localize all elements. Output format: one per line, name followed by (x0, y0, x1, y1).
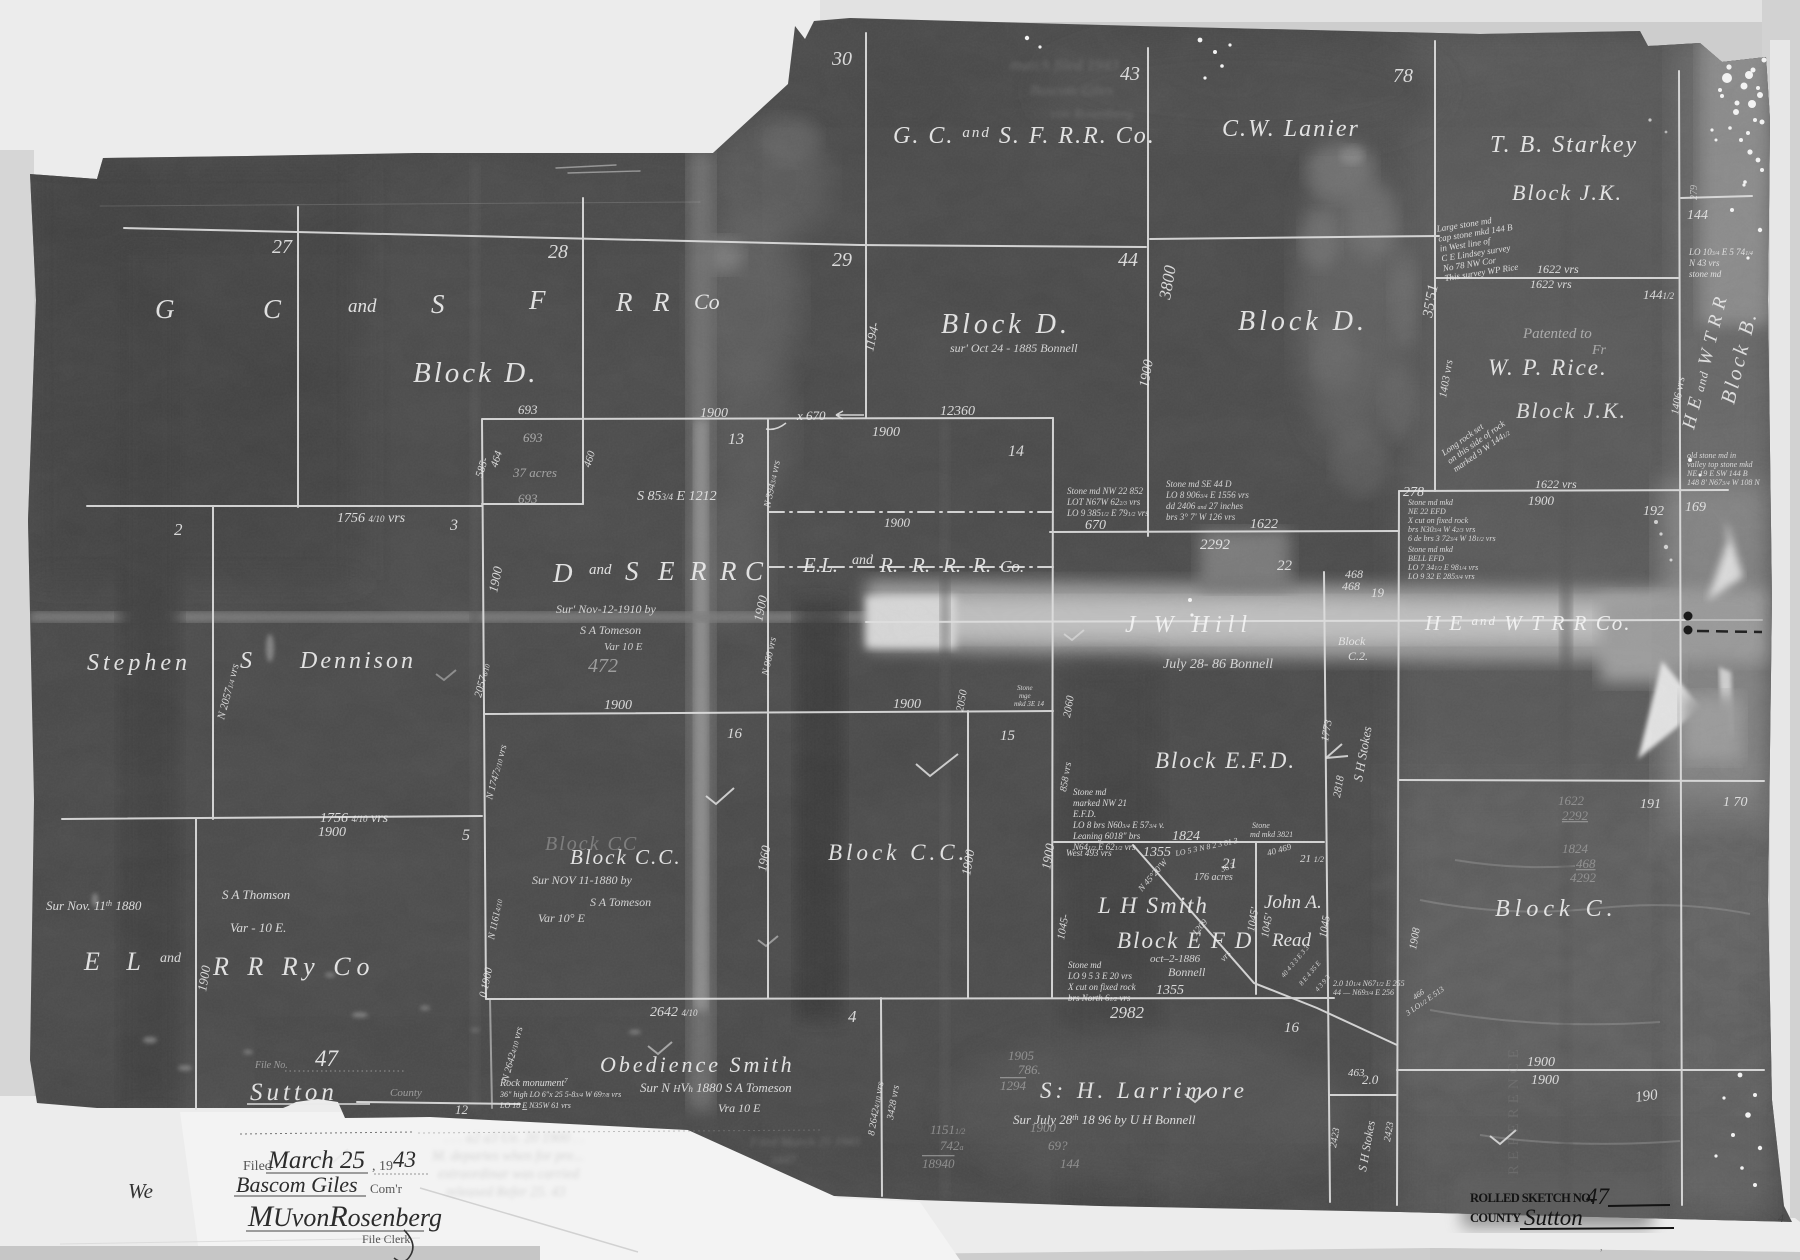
svg-text:REFERENCE: REFERENCE (1506, 1044, 1522, 1175)
svg-text:marked NW 21: marked NW 21 (1073, 798, 1127, 808)
svg-text:R: R (689, 556, 707, 586)
svg-text:3: 3 (449, 517, 458, 534)
svg-text:Block E F D: Block E F D (1117, 928, 1253, 953)
svg-text:1622: 1622 (1558, 793, 1585, 808)
svg-text:1756 4/10 vrs: 1756 4/10 vrs (320, 811, 389, 826)
svg-text:Block D.: Block D. (941, 309, 1071, 340)
svg-text:1756 4/10 vrs: 1756 4/10 vrs (337, 511, 406, 526)
svg-text:and: and (160, 951, 182, 966)
svg-text:1622 vrs: 1622 vrs (1535, 477, 1577, 491)
svg-text:22: 22 (1277, 558, 1293, 574)
svg-text:M. departes when for pre...: M. departes when for pre... (431, 1149, 584, 1164)
svg-text:176 acres: 176 acres (1194, 872, 1233, 883)
svg-text:brs North 61/2 vrs: brs North 61/2 vrs (1068, 993, 1131, 1003)
svg-text:12360: 12360 (940, 404, 975, 419)
svg-text:Sutton: Sutton (1524, 1205, 1583, 1230)
svg-text:21 1/2: 21 1/2 (1300, 853, 1324, 865)
svg-text:R.: R. (879, 553, 898, 577)
svg-text:X cut on fixed rock: X cut on fixed rock (1067, 982, 1137, 992)
svg-text:County: County (390, 1087, 422, 1099)
svg-text:693: 693 (518, 491, 538, 506)
svg-text:Block D.: Block D. (1238, 306, 1368, 337)
svg-text:1900: 1900 (318, 825, 346, 840)
svg-text:LO 7 341/2 E 981/4 vrs: LO 7 341/2 E 981/4 vrs (1407, 563, 1478, 572)
svg-text:X cut on fixed rock: X cut on fixed rock (1407, 516, 1469, 525)
svg-text:Sur NOV 11-1880 by: Sur NOV 11-1880 by (532, 873, 633, 887)
svg-text:released Refer 25. 43: released Refer 25. 43 (446, 1185, 565, 1200)
svg-text:15: 15 (1000, 728, 1016, 744)
svg-text:G. C. and S. F. R.R. Co.: G. C. and S. F. R.R. Co. (893, 123, 1156, 149)
svg-text:Block J.K.: Block J.K. (1516, 398, 1627, 423)
svg-text:27: 27 (272, 236, 293, 258)
svg-text:G: G (155, 294, 175, 324)
svg-text:18940: 18940 (922, 1156, 955, 1171)
svg-text:2642 4/10: 2642 4/10 (650, 1005, 698, 1020)
svg-text:Block C.: Block C. (1495, 896, 1618, 922)
svg-text:Block: Block (1338, 634, 1366, 648)
svg-text:144: 144 (1687, 208, 1708, 223)
svg-text:NE 22 EFD: NE 22 EFD (1407, 507, 1446, 516)
svg-text:NE 19 E SW 144 B: NE 19 E SW 144 B (1686, 469, 1748, 478)
svg-text:Var 10° E: Var 10° E (538, 911, 585, 925)
svg-text:1900: 1900 (872, 425, 900, 440)
svg-text:2292: 2292 (1562, 808, 1589, 823)
svg-text:von Rosenberg: von Rosenberg (1050, 107, 1133, 122)
svg-text:Block C.C.: Block C.C. (828, 840, 968, 865)
svg-text:old stone md in: old stone md in (1687, 451, 1736, 460)
svg-text:E.F.D.: E.F.D. (1072, 809, 1096, 819)
svg-text:468: 468 (1342, 579, 1360, 593)
svg-text:Stone: Stone (1252, 821, 1270, 830)
svg-text:1622 vrs: 1622 vrs (1537, 262, 1579, 276)
svg-text:14: 14 (1008, 443, 1024, 460)
svg-text:Co: Co (694, 289, 720, 314)
svg-text:Sur N HVh 1880 S A Tomeson: Sur N HVh 1880 S A Tomeson (640, 1080, 792, 1095)
svg-text:Sur Nov. 11th 1880: Sur Nov. 11th 1880 (46, 898, 142, 913)
svg-text:Bascom Giles: Bascom Giles (1030, 83, 1113, 99)
svg-text:Bascom Giles: Bascom Giles (236, 1172, 358, 1197)
svg-text:West 493 vrs: West 493 vrs (1066, 848, 1112, 858)
svg-text:march filed 1943: march filed 1943 (1010, 57, 1119, 74)
svg-text:H E and W T R R Co.: H E and W T R R Co. (1424, 611, 1631, 635)
svg-text:R: R (652, 287, 670, 317)
svg-text:191: 191 (1640, 797, 1661, 812)
svg-text:We: We (128, 1179, 153, 1203)
svg-text:29: 29 (832, 249, 852, 271)
svg-text:LOT N67W 622/3 vrs: LOT N67W 622/3 vrs (1066, 497, 1141, 507)
svg-text:28: 28 (548, 241, 568, 263)
svg-text:LO 9 32 E 2853/4 vrs: LO 9 32 E 2853/4 vrs (1407, 572, 1475, 581)
svg-text:ROLLED SKETCH NO.: ROLLED SKETCH NO. (1470, 1191, 1593, 1205)
svg-text:mge: mge (1019, 692, 1031, 700)
svg-text:R.: R. (911, 553, 930, 577)
svg-text:Block J.K.: Block J.K. (1512, 180, 1623, 205)
svg-text:R: R (615, 287, 633, 317)
svg-text:693: 693 (523, 430, 543, 445)
svg-text:L H Smith: L H Smith (1097, 893, 1209, 918)
svg-text:1900: 1900 (1030, 1120, 1057, 1135)
svg-text:1294: 1294 (1000, 1078, 1027, 1093)
svg-text:F: F (528, 285, 546, 315)
svg-text:43: 43 (1120, 63, 1140, 85)
svg-text:valley top stone mkd: valley top stone mkd (1687, 460, 1754, 469)
svg-text:16: 16 (1284, 1020, 1300, 1036)
svg-text:670: 670 (1085, 518, 1106, 533)
svg-text:693: 693 (518, 402, 538, 417)
svg-text:16: 16 (727, 726, 743, 742)
svg-text:July 28- 86 Bonnell: July 28- 86 Bonnell (1163, 657, 1273, 672)
svg-text:Vra 10 E: Vra 10 E (718, 1101, 761, 1115)
svg-text:1 70: 1 70 (1723, 795, 1748, 810)
svg-text:T. B. Starkey: T. B. Starkey (1490, 132, 1638, 158)
svg-text:Sutton: Sutton (250, 1079, 338, 1106)
svg-text:2292: 2292 (1200, 537, 1231, 553)
svg-text:, 19: , 19 (372, 1159, 393, 1174)
svg-text:1622 vrs: 1622 vrs (1530, 277, 1572, 291)
svg-text:Patented to: Patented to (1522, 326, 1592, 342)
svg-text:Stone md mkd: Stone md mkd (1408, 545, 1454, 554)
svg-text:R.: R. (942, 553, 961, 577)
svg-text:MUvonRosenberg: MUvonRosenberg (247, 1200, 442, 1233)
svg-text:,: , (1600, 1242, 1603, 1253)
svg-text:brs N303/4 W 42/3 vrs: brs N303/4 W 42/3 vrs (1408, 525, 1475, 534)
svg-text:Block E.F.D.: Block E.F.D. (1155, 748, 1296, 773)
svg-text:2.0 101/4 N671/2 E 255: 2.0 101/4 N671/2 E 255 (1333, 979, 1405, 988)
svg-text:37 acres: 37 acres (512, 465, 557, 480)
svg-text:. . . a2 a3 Ue. 20 1900 . .: . . . a2 a3 Ue. 20 1900 . . (445, 1131, 584, 1146)
svg-text:C: C (263, 294, 282, 324)
svg-text:S A Thomson: S A Thomson (222, 887, 290, 902)
svg-text:S 853/4 E 1212: S 853/4 E 1212 (637, 489, 717, 504)
svg-text:File Clerk: File Clerk (362, 1232, 410, 1246)
svg-text:Stone md: Stone md (1068, 960, 1102, 970)
svg-text:extraordinar was carried: extraordinar was carried (438, 1167, 580, 1182)
svg-text:2: 2 (174, 520, 183, 539)
svg-text:Co.: Co. (1000, 557, 1024, 576)
svg-text:Block C.C.: Block C.C. (570, 845, 682, 869)
svg-text:S: H. Larrimore: S: H. Larrimore (1040, 1078, 1248, 1103)
svg-text:March 25: March 25 (267, 1147, 365, 1174)
svg-text:Stone: Stone (1017, 684, 1033, 692)
svg-text:R: R (719, 556, 737, 586)
svg-text:E L: E L (83, 947, 151, 976)
svg-text:43: 43 (393, 1147, 416, 1172)
svg-text:44: 44 (1118, 249, 1138, 271)
svg-text:786.: 786. (1018, 1062, 1041, 1077)
svg-text:E.L.: E.L. (802, 553, 838, 577)
svg-text:1900: 1900 (1528, 493, 1555, 508)
svg-text:1900: 1900 (604, 698, 632, 713)
svg-text:COUNTY: COUNTY (1470, 1211, 1521, 1225)
svg-text:69?: 69? (1048, 1138, 1068, 1153)
svg-text:4: 4 (848, 1007, 857, 1026)
svg-text:169: 169 (1685, 500, 1706, 515)
svg-text:1900: 1900 (700, 406, 728, 421)
svg-text:1900: 1900 (893, 697, 921, 712)
svg-text:Filed March 25 1943: Filed March 25 1943 (749, 1134, 861, 1149)
svg-text:2982: 2982 (1110, 1003, 1145, 1022)
svg-text:File No.: File No. (254, 1060, 288, 1071)
svg-text:mkd 3E 14: mkd 3E 14 (1014, 700, 1044, 708)
svg-text:3447: 3447 (769, 1152, 797, 1167)
svg-text:LO 18 E N35W 61 vrs: LO 18 E N35W 61 vrs (499, 1101, 571, 1110)
svg-text:N 43 vrs: N 43 vrs (1688, 258, 1720, 268)
svg-text:190: 190 (1634, 1087, 1659, 1106)
svg-text:S: S (625, 556, 639, 586)
svg-text:Stone md NW 22 852: Stone md NW 22 852 (1067, 486, 1143, 496)
svg-text:S A Tomeson: S A Tomeson (580, 623, 641, 637)
svg-text:Block D.: Block D. (413, 357, 538, 389)
svg-text:Var 10 E: Var 10 E (604, 641, 643, 653)
svg-text:4292: 4292 (1570, 870, 1597, 885)
svg-text:Stone md SE 44 D: Stone md SE 44 D (1166, 479, 1232, 489)
svg-text:Obedience Smith: Obedience Smith (600, 1052, 795, 1077)
svg-text:sur' Oct 24 - 1885 Bonnell: sur' Oct 24 - 1885 Bonnell (950, 341, 1078, 355)
svg-text:Bonnell: Bonnell (1168, 965, 1206, 979)
svg-text:1824: 1824 (1562, 841, 1589, 856)
svg-text:1905: 1905 (1008, 1048, 1035, 1063)
svg-text:R R Ry Co: R R Ry Co (212, 952, 376, 981)
svg-text:C: C (745, 556, 764, 586)
svg-text:1355: 1355 (1143, 845, 1171, 860)
svg-text:J W Hill: J W Hill (1125, 612, 1253, 638)
svg-text:oct–2-1886: oct–2-1886 (1150, 953, 1201, 965)
svg-text:John A.: John A. (1264, 892, 1322, 913)
svg-text:LO 8 9063/4 E 1556 vrs: LO 8 9063/4 E 1556 vrs (1165, 490, 1249, 500)
svg-text:C.W. Lanier: C.W. Lanier (1222, 116, 1360, 142)
svg-text:and: and (348, 296, 377, 317)
svg-text:1900: 1900 (884, 515, 911, 530)
svg-text:19: 19 (1371, 585, 1385, 600)
svg-text:x 670: x 670 (796, 408, 826, 423)
svg-text:144: 144 (1060, 1156, 1080, 1171)
svg-text:1355: 1355 (1156, 983, 1184, 998)
svg-text:Stephen: Stephen (87, 650, 191, 676)
svg-text:192: 192 (1643, 504, 1664, 519)
svg-text:1824: 1824 (1172, 829, 1200, 844)
svg-text:W. P. Rice.: W. P. Rice. (1488, 355, 1608, 380)
svg-text:Var - 10 E.: Var - 10 E. (230, 920, 286, 935)
svg-text:and: and (589, 562, 612, 578)
svg-text:Sur' Nov-12-1910 by: Sur' Nov-12-1910 by (556, 602, 657, 616)
svg-text:R.: R. (972, 553, 991, 577)
svg-text:Leaning 6018" brs: Leaning 6018" brs (1072, 831, 1141, 841)
svg-text:47: 47 (315, 1046, 340, 1071)
svg-text:md mkd 3821: md mkd 3821 (1250, 830, 1293, 839)
svg-text:4: 4 (1778, 1211, 1784, 1225)
svg-text:Dennison: Dennison (299, 648, 416, 674)
svg-text:Com'r: Com'r (370, 1181, 403, 1196)
svg-text:S: S (431, 289, 445, 319)
svg-text:brs 3° 7' W 126 vrs: brs 3° 7' W 126 vrs (1166, 512, 1236, 522)
svg-text:5: 5 (462, 827, 470, 844)
svg-text:13: 13 (728, 431, 744, 448)
svg-text:472: 472 (588, 655, 618, 677)
svg-text:30: 30 (831, 48, 852, 70)
svg-text:Stone md mkd: Stone md mkd (1408, 498, 1454, 507)
svg-text:E: E (657, 556, 675, 586)
svg-text:1900: 1900 (1531, 1073, 1559, 1088)
svg-text:279: 279 (1689, 185, 1700, 200)
svg-text:and: and (852, 553, 874, 568)
svg-text:stone md: stone md (1689, 269, 1722, 279)
svg-text:1900: 1900 (1527, 1055, 1555, 1070)
svg-text:78: 78 (1393, 65, 1413, 87)
svg-text:Stone md: Stone md (1073, 787, 1107, 797)
svg-text:D: D (552, 558, 573, 588)
svg-text:S: S (240, 648, 252, 674)
svg-text:2.0: 2.0 (1362, 1072, 1379, 1087)
svg-text:12: 12 (455, 1102, 469, 1117)
svg-text:468: 468 (1576, 856, 1596, 871)
svg-text:44 — N693/4 E 256: 44 — N693/4 E 256 (1333, 988, 1394, 997)
svg-text:BELL EFD: BELL EFD (1408, 554, 1444, 563)
svg-text:LO 9 5 3 E 20 vrs: LO 9 5 3 E 20 vrs (1067, 971, 1132, 981)
svg-text:LO 103/4 E 5 741/4: LO 103/4 E 5 741/4 (1688, 247, 1753, 257)
svg-text:S A Tomeson: S A Tomeson (590, 895, 651, 909)
svg-text:47: 47 (1586, 1184, 1611, 1209)
svg-text:C.2.: C.2. (1348, 649, 1368, 663)
svg-text:1622: 1622 (1250, 517, 1278, 532)
